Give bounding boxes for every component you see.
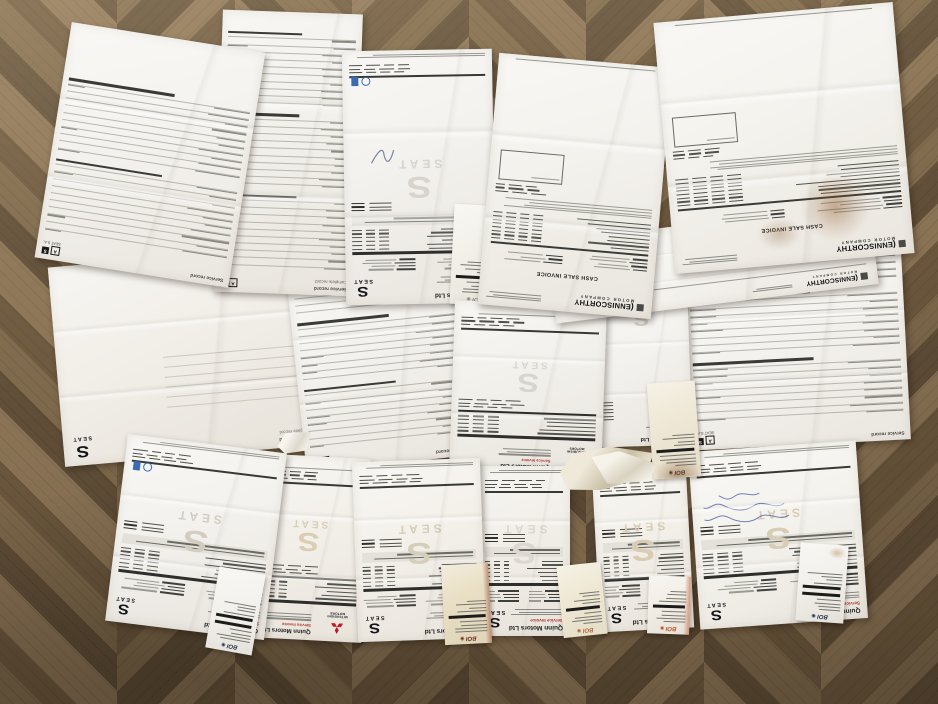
handwriting-ink <box>699 483 792 529</box>
fake-text-line <box>458 610 487 613</box>
fake-text-line <box>602 529 615 531</box>
fake-text-line <box>543 261 562 264</box>
fake-text-line <box>703 568 714 570</box>
fake-text-line <box>594 266 629 270</box>
enniscorthy-emblem-icon <box>860 272 868 280</box>
fake-text-line <box>488 416 499 418</box>
seat-watermark-word: SEAT <box>453 355 605 371</box>
fake-text-line <box>847 292 897 296</box>
fake-text-line <box>485 534 498 535</box>
fake-text-line <box>693 177 706 179</box>
seat-logo-block: SSEAT <box>72 434 94 459</box>
seat-logo-icon: S <box>70 440 96 459</box>
fake-text-line <box>533 226 543 228</box>
stain-blotch <box>656 450 700 479</box>
seat-watermark: SSEAT <box>452 355 605 398</box>
fake-text-line <box>677 204 690 206</box>
fake-text-line <box>870 299 898 302</box>
fake-text-line <box>133 563 143 565</box>
fake-text-line <box>712 198 725 200</box>
fake-text-line <box>474 324 484 326</box>
dealer-stamp <box>133 461 153 472</box>
fake-text-line <box>120 554 130 556</box>
fake-text-line <box>429 314 455 318</box>
table-header-bar <box>485 491 563 494</box>
handwritten-mark <box>369 141 395 166</box>
fake-text-line <box>357 55 485 58</box>
fake-text-line <box>717 560 728 562</box>
fake-text-line <box>602 533 615 535</box>
fake-text-line <box>614 575 620 576</box>
details-column <box>605 585 641 600</box>
spacer <box>503 425 547 427</box>
fake-text-line <box>365 259 396 261</box>
fake-text-line <box>584 611 601 614</box>
cash-sale-invoice-label: CASH SALE INVOICE <box>536 270 598 281</box>
total-row <box>485 541 563 542</box>
fake-text-line <box>692 352 720 355</box>
spacer <box>503 417 544 418</box>
fake-text-line <box>379 68 394 69</box>
fake-text-line <box>632 269 646 272</box>
handwriting-ink <box>369 146 395 166</box>
fake-text-line <box>753 585 776 588</box>
fake-text-line <box>505 231 515 233</box>
fake-text-line <box>363 566 371 567</box>
fake-text-line <box>677 193 690 195</box>
seat-logo-block: SSEAT <box>113 594 136 618</box>
seat-watermark-s: S <box>342 169 496 204</box>
document-r3: BOI◉ <box>556 562 607 638</box>
fake-text-line <box>719 532 741 535</box>
fake-text-line <box>709 464 724 466</box>
fake-text-line <box>701 530 714 532</box>
fake-text-line <box>819 609 840 611</box>
fake-text-line <box>866 314 899 317</box>
total-row <box>485 537 563 538</box>
boi-circle-icon: ◉ <box>660 625 665 630</box>
fake-text-line <box>360 479 375 481</box>
fake-text-line <box>305 573 318 575</box>
fake-text-line <box>536 480 545 481</box>
fake-text-line <box>673 434 695 437</box>
spacer <box>632 558 659 559</box>
dealer-address <box>499 448 551 456</box>
footer-smallprint <box>485 470 563 475</box>
service-record-label: Service record <box>314 285 347 291</box>
fake-text-line <box>119 565 129 567</box>
fake-text-line <box>694 196 707 198</box>
fake-text-line <box>461 623 487 625</box>
fake-text-line <box>503 534 525 535</box>
fake-text-line <box>457 430 468 432</box>
fake-text-line <box>124 523 137 526</box>
fake-text-line <box>474 406 484 408</box>
fake-text-line <box>620 532 642 534</box>
fake-text-line <box>396 601 416 603</box>
fake-text-line <box>302 569 312 571</box>
fake-text-line <box>761 579 776 581</box>
fake-text-line <box>727 174 740 176</box>
fake-text-line <box>459 620 486 622</box>
fake-text-line <box>505 238 515 240</box>
fake-text-line <box>398 68 411 69</box>
fake-text-line <box>365 602 393 604</box>
fake-text-line <box>505 234 515 236</box>
fake-text-line <box>333 48 355 50</box>
fake-text-line <box>882 195 901 198</box>
fake-text-line <box>693 181 706 183</box>
fake-text-line <box>506 400 520 402</box>
fake-text-line <box>135 552 145 554</box>
spacer <box>393 233 431 234</box>
fake-text-line <box>491 237 501 239</box>
fake-text-line <box>458 406 469 408</box>
service-record-label: Service record <box>871 429 905 436</box>
fake-text-line <box>324 268 348 270</box>
fake-text-line <box>349 72 362 73</box>
fake-text-line <box>507 212 517 214</box>
fake-text-line <box>676 186 689 188</box>
fake-text-line <box>366 72 376 73</box>
fake-text-line <box>351 203 364 205</box>
fake-text-line <box>760 582 777 584</box>
fake-text-line <box>691 330 723 333</box>
invoice-header: Quinn Motors LtdService InvoiceSSEAT <box>478 607 570 636</box>
fake-text-line <box>459 399 473 401</box>
fake-text-line <box>603 412 613 413</box>
fake-text-line <box>164 460 177 463</box>
fake-text-line <box>616 490 627 492</box>
fake-text-line <box>815 602 841 605</box>
seat-sa-a-icon: A <box>228 278 237 287</box>
fake-text-line <box>410 481 421 483</box>
spacer <box>633 566 658 567</box>
fake-text-line <box>604 572 610 573</box>
fake-text-line <box>349 69 360 70</box>
fake-text-line <box>884 206 903 209</box>
fake-text-line <box>492 222 502 224</box>
fake-text-line <box>349 65 362 66</box>
photo-scene: Service recordComplete recordSSEATServic… <box>0 0 938 704</box>
seat-watermark: SSEAT <box>344 156 495 204</box>
items-table <box>450 398 603 444</box>
fake-text-line <box>874 335 900 337</box>
fake-text-line <box>711 190 724 192</box>
seat-sa-a-icon: A <box>705 435 714 444</box>
fake-text-line <box>503 538 525 539</box>
spacer <box>746 549 789 552</box>
fake-text-line <box>756 588 776 591</box>
fake-text-line <box>279 592 287 594</box>
fake-text-line <box>519 228 529 230</box>
fake-text-line <box>544 418 596 421</box>
fake-text-line <box>461 320 475 322</box>
document-r5: BOI◉ <box>795 542 848 623</box>
fake-text-line <box>494 564 499 565</box>
fake-text-line <box>678 440 695 442</box>
fake-text-line <box>513 322 524 324</box>
fake-text-line <box>694 192 707 194</box>
fake-text-line <box>380 542 402 544</box>
fake-text-line <box>394 262 415 264</box>
fake-text-line <box>712 201 725 203</box>
fake-text-line <box>352 206 365 208</box>
fake-text-line <box>473 427 484 429</box>
fake-text-line <box>488 420 499 422</box>
fake-text-line <box>228 44 248 46</box>
fake-text-line <box>363 581 371 582</box>
fake-text-line <box>633 259 648 262</box>
fake-text-line <box>868 366 901 369</box>
fake-text-line <box>362 543 375 545</box>
fake-text-line <box>365 233 375 234</box>
fake-text-line <box>673 151 684 153</box>
fake-text-line <box>377 475 388 477</box>
table-row <box>485 564 563 565</box>
seat-sa-a-icon: A <box>50 246 60 256</box>
fake-text-line <box>492 226 502 228</box>
fake-text-line <box>391 482 406 484</box>
seat-logo-icon: S <box>111 601 137 619</box>
fake-text-line <box>180 462 192 465</box>
fake-text-line <box>657 564 684 567</box>
detail-row <box>364 604 416 607</box>
fake-text-line <box>473 423 484 425</box>
fake-text-line <box>485 487 495 488</box>
fake-text-line <box>530 484 541 485</box>
seat-wordmark: SEAT <box>353 277 373 283</box>
table-header-bar <box>485 583 563 586</box>
fake-text-line <box>732 559 743 561</box>
fake-text-line <box>398 265 415 267</box>
detail-row <box>485 590 519 591</box>
fake-text-line <box>675 179 688 181</box>
fake-text-line <box>364 68 375 69</box>
fake-text-line <box>814 582 842 585</box>
fake-text-line <box>498 600 519 601</box>
total-row <box>485 534 563 535</box>
contact-block <box>682 249 738 267</box>
document-r4: BOI◉ <box>647 575 691 634</box>
fake-text-line <box>728 185 741 187</box>
fake-text-line <box>677 201 690 203</box>
fake-text-line <box>631 266 647 269</box>
fake-text-line <box>375 570 383 571</box>
fake-text-line <box>694 397 720 399</box>
fake-text-line <box>498 321 509 323</box>
contact-block <box>486 285 542 303</box>
fake-text-line <box>375 577 383 578</box>
spacer <box>503 428 540 429</box>
fake-text-line <box>379 229 389 230</box>
fake-text-line <box>332 41 356 43</box>
fake-text-line <box>179 454 191 457</box>
fake-text-line <box>490 597 500 598</box>
fake-text-line <box>728 462 741 464</box>
seat-logo-block: SSEAT <box>606 604 627 626</box>
fake-text-line <box>495 190 509 192</box>
fake-text-line <box>396 268 415 270</box>
seat-watermark-s: S <box>449 365 607 399</box>
spacer <box>242 200 330 203</box>
fake-text-line <box>352 245 362 246</box>
fake-text-line <box>676 190 689 192</box>
stamp-block-icon <box>133 461 141 471</box>
fake-text-line <box>822 576 843 578</box>
fake-text-line <box>378 595 396 597</box>
fake-text-line <box>549 258 563 260</box>
fake-text-line <box>630 489 640 491</box>
fake-text-line <box>659 560 684 562</box>
spacer <box>633 562 659 563</box>
fake-text-line <box>279 588 287 590</box>
fake-text-line <box>518 236 528 238</box>
dealer-name: Quinn Motors Ltd <box>509 623 563 630</box>
dealer-address <box>509 609 563 615</box>
boi-logo-text: BOI <box>227 642 239 650</box>
fake-text-line <box>274 572 286 574</box>
group-divider <box>228 31 302 36</box>
spacer <box>632 554 660 555</box>
fake-text-line <box>461 324 470 326</box>
complete-record-label: Complete record <box>314 279 347 285</box>
fake-text-line <box>366 237 376 238</box>
table-row <box>485 561 563 562</box>
fake-text-line <box>728 178 741 180</box>
fake-text-line <box>693 185 706 187</box>
fake-text-line <box>366 245 376 246</box>
receipt-content: BOI◉ <box>559 588 608 638</box>
fake-text-line <box>545 255 562 258</box>
fake-text-line <box>394 598 416 600</box>
fake-text-line <box>623 559 629 560</box>
spacer <box>399 572 440 573</box>
fake-text-line <box>352 241 362 242</box>
spacer <box>291 597 315 598</box>
fake-text-line <box>614 571 620 572</box>
fake-text-line <box>366 605 393 607</box>
fake-text-line <box>493 211 503 213</box>
fake-text-line <box>702 553 713 555</box>
fake-text-line <box>690 316 716 318</box>
fake-text-line <box>644 488 654 490</box>
fake-text-line <box>504 564 509 565</box>
fake-text-line <box>375 566 383 567</box>
spacer <box>393 240 443 241</box>
fake-text-line <box>379 241 389 242</box>
fake-text-line <box>848 359 901 363</box>
fake-text-line <box>305 566 319 568</box>
spacer <box>613 408 649 410</box>
fake-text-line <box>315 587 357 590</box>
seat-sa-logos: AS <box>696 435 714 445</box>
spacer <box>633 569 661 570</box>
fake-text-line <box>504 580 509 581</box>
fake-text-line <box>279 596 287 598</box>
fake-text-line <box>620 528 642 530</box>
receipt-content: BOI◉ <box>795 568 847 624</box>
boi-circle-icon: ◉ <box>221 641 226 647</box>
bottom-table <box>485 480 563 493</box>
shaded-band <box>485 547 563 556</box>
fake-text-line <box>605 589 616 591</box>
mitsubishi-logo-icon <box>330 622 345 635</box>
fake-text-line <box>537 433 595 436</box>
fake-text-line <box>515 484 527 485</box>
fake-text-line <box>149 554 159 556</box>
fake-text-line <box>485 541 498 542</box>
fake-text-line <box>613 556 619 557</box>
fake-text-line <box>533 222 543 224</box>
customer-copy-box <box>672 112 738 147</box>
table-row <box>485 480 563 481</box>
fake-text-line <box>771 209 785 211</box>
fake-text-line <box>690 309 716 311</box>
fake-text-line <box>165 453 175 455</box>
fake-text-line <box>717 556 728 558</box>
fake-text-line <box>520 221 530 223</box>
seat-logo-block: SSEAT <box>353 277 374 299</box>
fake-text-line <box>362 546 375 548</box>
fake-text-line <box>370 206 392 208</box>
fake-text-line <box>730 469 743 471</box>
fake-text-line <box>305 472 318 474</box>
fake-text-line <box>288 565 301 567</box>
customer-details <box>478 590 570 606</box>
fake-text-line <box>290 471 301 473</box>
fake-text-line <box>286 569 298 571</box>
fake-text-line <box>360 483 369 485</box>
detail-row <box>353 268 416 270</box>
details-column <box>485 590 519 603</box>
fake-text-line <box>373 482 388 484</box>
boi-circle-icon: ◉ <box>460 635 465 640</box>
fake-text-line <box>455 630 487 633</box>
fake-text-line <box>515 487 527 488</box>
fake-text-line <box>729 590 754 593</box>
fake-text-line <box>532 233 542 235</box>
fake-text-line <box>386 566 394 567</box>
receipt-content: BOI◉ <box>205 596 260 656</box>
fake-text-line <box>677 197 690 199</box>
fake-text-line <box>613 564 619 565</box>
fake-text-line <box>603 405 613 406</box>
fake-text-line <box>504 597 519 598</box>
seat-logo-icon: S <box>351 284 376 299</box>
fake-text-line <box>623 555 629 556</box>
fake-text-line <box>733 570 744 572</box>
fake-text-line <box>732 551 743 553</box>
fake-text-line <box>511 614 563 615</box>
fake-text-line <box>387 581 395 582</box>
fake-text-line <box>133 452 143 454</box>
fake-text-line <box>707 137 735 140</box>
fake-text-line <box>498 590 519 591</box>
fake-text-line <box>147 569 157 571</box>
details-column <box>364 595 416 610</box>
fake-text-line <box>626 591 640 593</box>
fake-text-line <box>493 219 503 221</box>
boi-logo: BOI◉ <box>651 624 685 631</box>
fake-text-line <box>542 561 563 562</box>
fake-text-line <box>540 429 596 432</box>
fake-text-line <box>696 419 726 422</box>
fake-text-line <box>161 456 173 459</box>
fake-text-line <box>352 230 362 231</box>
fake-text-line <box>533 218 543 220</box>
fake-text-line <box>375 574 383 575</box>
